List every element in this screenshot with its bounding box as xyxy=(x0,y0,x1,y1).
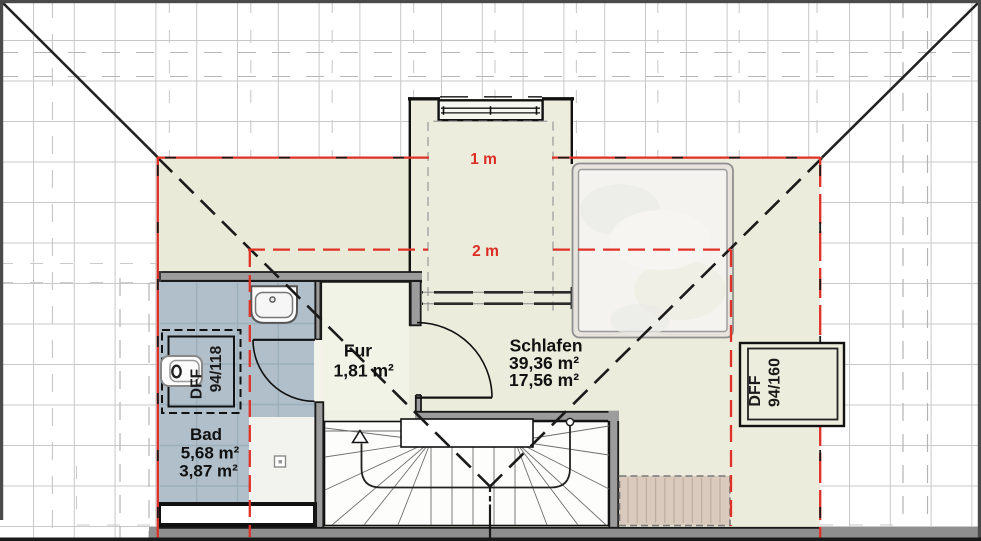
svg-text:94/118: 94/118 xyxy=(208,345,225,392)
svg-text:17,56 m²: 17,56 m² xyxy=(509,370,579,390)
svg-text:94/160: 94/160 xyxy=(767,358,784,407)
svg-text:2 m: 2 m xyxy=(472,243,499,260)
svg-text:Fur: Fur xyxy=(344,340,372,360)
svg-text:1,81 m²: 1,81 m² xyxy=(334,360,394,380)
svg-text:DFF: DFF xyxy=(747,375,764,406)
svg-text:Bad: Bad xyxy=(190,425,222,444)
svg-text:DFF: DFF xyxy=(189,369,206,399)
svg-text:5,68 m²: 5,68 m² xyxy=(181,444,240,463)
svg-text:3,87 m²: 3,87 m² xyxy=(179,462,238,481)
svg-text:1 m: 1 m xyxy=(470,151,497,168)
